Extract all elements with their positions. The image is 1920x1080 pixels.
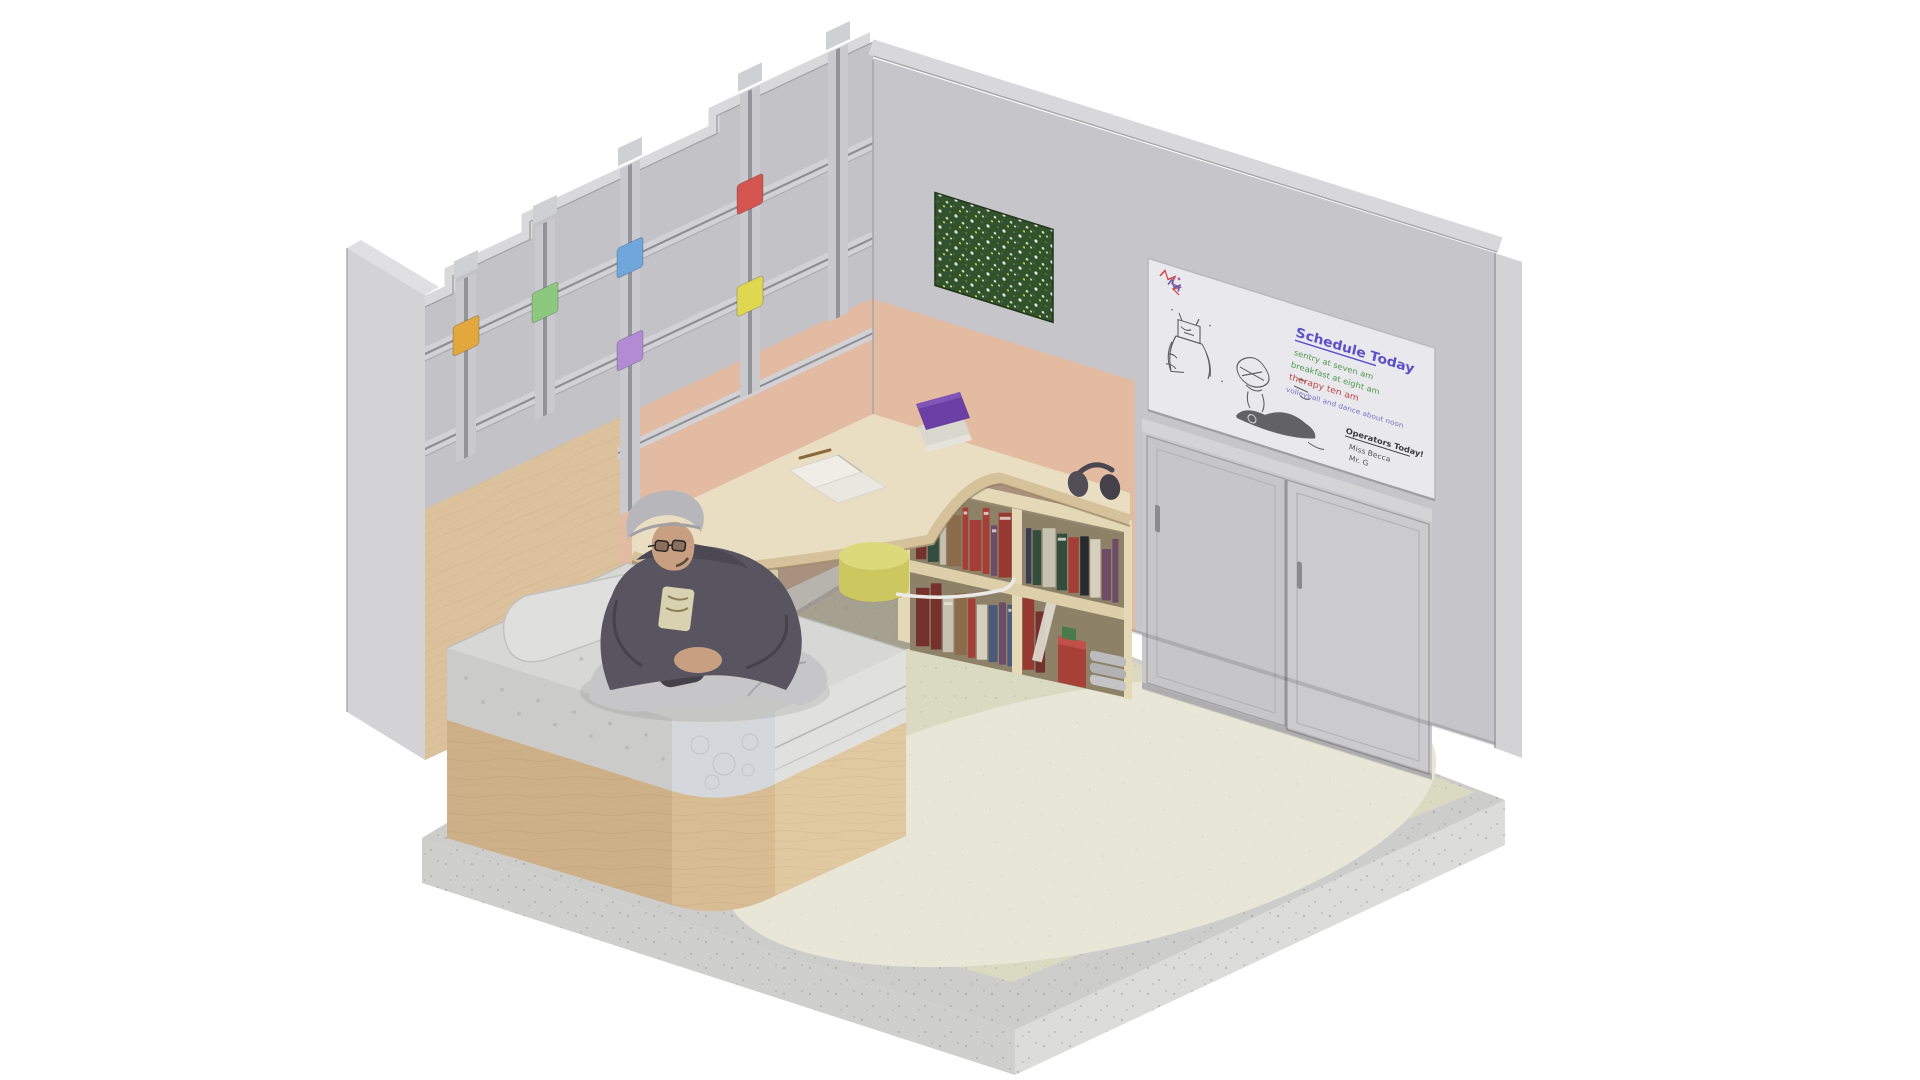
wardrobe-door-left <box>1147 436 1285 726</box>
hoodie-graphic <box>658 586 695 632</box>
wardrobe-handle-left <box>1155 504 1160 533</box>
hands <box>674 647 722 673</box>
right-wall-end-cap <box>1495 253 1522 758</box>
wardrobe-door-right <box>1287 480 1429 775</box>
isometric-room-scene: Schedule Today sentry at seven am breakf… <box>0 0 1920 1080</box>
render-canvas: Schedule Today sentry at seven am breakf… <box>0 0 1920 1080</box>
wardrobe-handle-right <box>1297 561 1302 590</box>
